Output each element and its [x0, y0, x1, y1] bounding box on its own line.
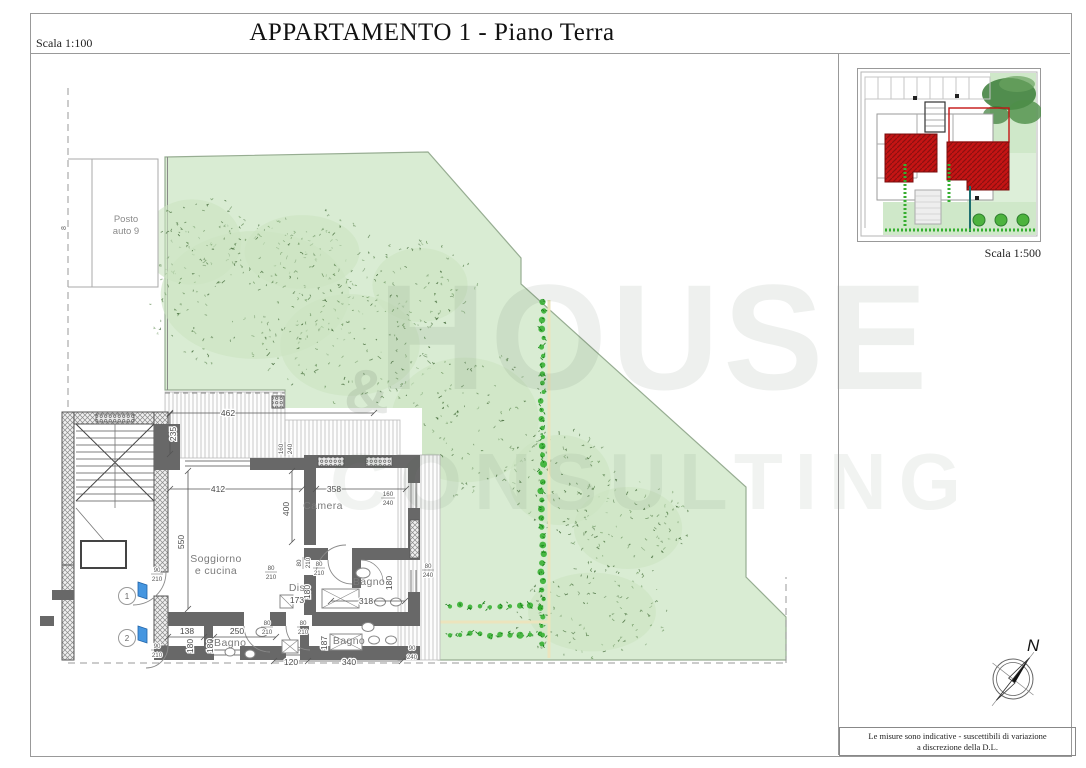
disclaimer-line-2: a discrezione della D.L.: [842, 742, 1073, 753]
main-scale-label: Scala 1:100: [36, 36, 92, 51]
right-panel: Scala 1:500 N Le misure sono indicative …: [838, 53, 1071, 755]
inset-scale-label: Scala 1:500: [985, 246, 1041, 261]
site-plan-inset: [857, 68, 1041, 242]
title-bar: APPARTAMENTO 1 - Piano Terra Scala 1:100: [30, 13, 1070, 54]
disclaimer-line-1: Le misure sono indicative - suscettibili…: [842, 731, 1073, 742]
compass-north-label: N: [1027, 636, 1040, 655]
disclaimer-box: Le misure sono indicative - suscettibili…: [839, 727, 1076, 756]
drawing-sheet: Posto auto 9 8: [0, 0, 1086, 768]
page-title: APPARTAMENTO 1 - Piano Terra: [30, 19, 834, 47]
compass: N: [969, 613, 1059, 723]
